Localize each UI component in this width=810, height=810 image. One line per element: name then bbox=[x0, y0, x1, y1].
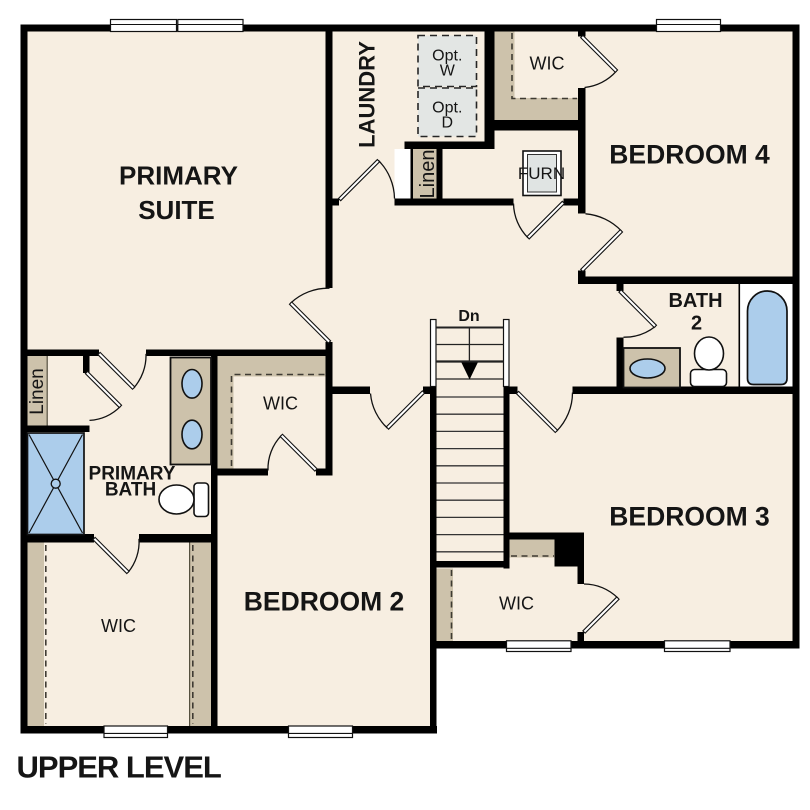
svg-text:BEDROOM 3: BEDROOM 3 bbox=[609, 502, 770, 532]
svg-text:2: 2 bbox=[691, 313, 702, 335]
svg-text:D: D bbox=[442, 115, 454, 132]
svg-text:UPPER LEVEL: UPPER LEVEL bbox=[17, 750, 221, 785]
svg-text:WIC: WIC bbox=[499, 594, 534, 614]
svg-text:WIC: WIC bbox=[101, 616, 136, 636]
svg-text:PRIMARY: PRIMARY bbox=[119, 161, 238, 191]
svg-text:BATH: BATH bbox=[105, 480, 156, 501]
svg-text:WIC: WIC bbox=[263, 394, 298, 414]
svg-text:FURN: FURN bbox=[518, 164, 565, 183]
svg-text:SUITE: SUITE bbox=[138, 195, 215, 225]
svg-text:Dn: Dn bbox=[458, 308, 479, 325]
svg-text:WIC: WIC bbox=[530, 54, 565, 74]
svg-text:Linen: Linen bbox=[417, 150, 439, 199]
svg-text:BEDROOM 4: BEDROOM 4 bbox=[609, 140, 770, 170]
svg-text:BATH: BATH bbox=[668, 290, 722, 312]
svg-text:W: W bbox=[440, 63, 456, 80]
svg-text:BEDROOM 2: BEDROOM 2 bbox=[244, 587, 405, 617]
svg-text:Linen: Linen bbox=[27, 368, 48, 415]
svg-text:LAUNDRY: LAUNDRY bbox=[355, 41, 380, 148]
